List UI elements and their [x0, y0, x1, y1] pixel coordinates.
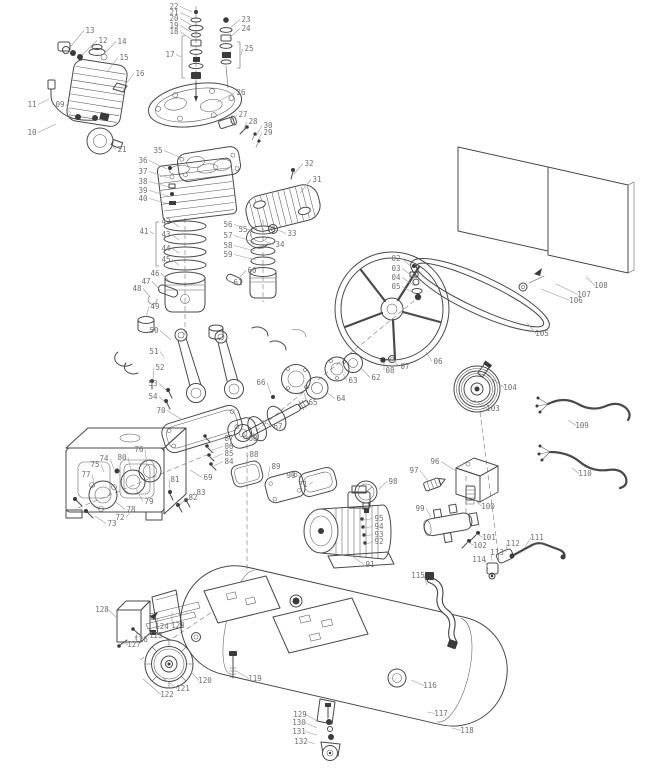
leader-line: [160, 331, 171, 341]
leader-line: [212, 447, 223, 451]
part-number-label: 74: [99, 454, 109, 463]
valve-plate-parts: [168, 166, 176, 205]
part-number-label: 104: [503, 383, 517, 392]
leader-line: [278, 230, 286, 234]
leader-line: [364, 519, 373, 521]
leader-line: [172, 249, 179, 254]
part-number-label: 95: [374, 514, 383, 523]
leader-line: [361, 368, 370, 378]
part-number-label: 06: [433, 357, 443, 366]
part-number-label: 72: [115, 513, 124, 522]
part-number-label: 102: [473, 541, 487, 550]
leader-line: [307, 742, 315, 745]
leader-line: [176, 55, 181, 58]
part-number-label: 33: [287, 229, 296, 238]
part-number-label: 37: [138, 167, 147, 176]
part-number-label: 23: [241, 15, 250, 24]
part-number-label: 15: [119, 53, 128, 62]
part-number-label: 110: [578, 469, 592, 478]
part-number-label: 35: [153, 146, 162, 155]
leader-line: [180, 13, 192, 19]
part-number-label: 88: [249, 450, 259, 459]
leader-line: [101, 465, 104, 473]
part-number-label: 04: [391, 273, 401, 282]
part-number-label: 116: [423, 681, 437, 690]
leader-line: [309, 482, 313, 485]
leader-line: [426, 352, 432, 362]
leader-line: [306, 715, 317, 722]
leader-line: [108, 610, 116, 618]
part-number-label: 98: [388, 477, 398, 486]
part-number-label: 107: [577, 290, 591, 299]
outlet-manifold: [421, 486, 481, 548]
leader-line: [190, 470, 202, 478]
part-number-label: 131: [292, 727, 306, 736]
part-number-label: 25: [244, 44, 253, 53]
mounting-plates: [204, 576, 368, 653]
intake-muffler: [58, 42, 129, 128]
leader-line: [441, 462, 456, 472]
part-number-label: 08: [385, 366, 395, 375]
part-number-label: 24: [241, 24, 251, 33]
leader-line: [210, 439, 223, 443]
part-number-label: 99: [415, 504, 424, 513]
part-number-label: 43: [161, 230, 170, 239]
part-number-label: 53: [148, 379, 157, 388]
part-number-label: 73: [107, 519, 116, 528]
part-number-label: 78: [126, 505, 136, 514]
leader-line: [541, 289, 570, 301]
part-number-label: 70: [156, 406, 166, 415]
leader-line: [159, 397, 165, 403]
part-number-label: 45: [161, 255, 170, 264]
part-number-label: 68: [248, 434, 258, 443]
part-number-label: 42: [161, 217, 170, 226]
part-number-label: 113: [490, 548, 504, 557]
leader-line: [267, 383, 271, 395]
part-number-label: 77: [81, 470, 90, 479]
part-number-label: 80: [117, 453, 127, 462]
leader-line: [426, 509, 431, 518]
part-number-label: 67: [273, 422, 282, 431]
part-number-label: 50: [149, 326, 159, 335]
leader-line: [420, 471, 428, 482]
leader-line: [149, 199, 169, 205]
part-number-label: 51: [149, 347, 158, 356]
leader-line: [326, 392, 335, 399]
part-number-label: 31: [312, 175, 321, 184]
part-number-label: 100: [481, 502, 495, 511]
part-number-label: 75: [90, 460, 99, 469]
leader-line: [172, 235, 179, 241]
part-number-label: 29: [263, 128, 272, 137]
leader-line: [180, 7, 192, 13]
part-number-label: 62: [371, 373, 380, 382]
leader-line: [150, 232, 154, 235]
part-number-label: 14: [117, 37, 127, 46]
part-number-label: 97: [409, 466, 418, 475]
part-number-label: 87: [224, 434, 233, 443]
part-number-label: 130: [292, 718, 306, 727]
part-number-label: 07: [400, 362, 409, 371]
part-number-label: 44: [161, 244, 171, 253]
leader-line: [379, 482, 387, 490]
part-number-label: 02: [391, 254, 400, 263]
leader-line: [172, 222, 179, 228]
leader-line: [38, 124, 56, 133]
part-number-label: 111: [530, 533, 544, 542]
axis-lines: [78, 6, 499, 660]
head-studs: [240, 125, 261, 147]
part-number-label: 38: [138, 177, 148, 186]
belt-guard-grille: [458, 147, 634, 291]
part-number-label: 12: [98, 36, 107, 45]
cylinder-head: [145, 77, 244, 133]
part-number-label: 52: [155, 363, 164, 372]
part-number-label: 90: [286, 471, 296, 480]
part-number-label: 89: [271, 462, 280, 471]
part-number-label: 128: [95, 605, 109, 614]
pressure-switch: [456, 458, 498, 504]
part-number-label: 91: [365, 560, 374, 569]
part-number-label: 22: [169, 2, 178, 11]
part-number-label: 93: [374, 530, 383, 539]
leader-line: [164, 151, 182, 159]
air-tank: [170, 555, 518, 737]
part-number-label: 69: [203, 473, 212, 482]
part-number-label: 118: [460, 726, 474, 735]
leader-line: [146, 307, 149, 318]
part-number-label: 109: [575, 421, 589, 430]
part-number-label: 11: [27, 100, 36, 109]
part-number-label: 60: [247, 266, 257, 275]
leader-line: [305, 723, 317, 729]
part-number-label: 114: [472, 555, 486, 564]
part-number-label: 127: [127, 640, 141, 649]
part-number-label: 13: [85, 26, 94, 35]
crankshaft: [226, 390, 314, 450]
leader-line: [145, 450, 147, 466]
part-number-label: 58: [223, 241, 233, 250]
fin-cover: [243, 168, 324, 234]
part-number-label: 27: [238, 110, 247, 119]
leader-line: [110, 459, 114, 470]
part-number-label: 123: [171, 621, 185, 630]
part-number-label: 49: [150, 302, 159, 311]
part-number-label: 17: [165, 50, 174, 59]
part-number-label: 124: [155, 622, 169, 631]
part-number-label: 132: [294, 737, 308, 746]
leader-line: [124, 74, 134, 87]
part-number-label: 121: [176, 684, 190, 693]
part-number-label: 120: [198, 676, 212, 685]
leader-line: [116, 502, 125, 510]
part-number-label: 46: [150, 269, 160, 278]
v-belt: [403, 246, 557, 345]
leader-line: [149, 172, 169, 179]
part-number-label: 66: [256, 378, 266, 387]
part-number-label: 76: [134, 445, 144, 454]
part-number-label: 63: [348, 376, 357, 385]
unloader-fitting: [423, 475, 447, 491]
connecting-rods: [115, 327, 306, 409]
part-number-label: 61: [233, 278, 242, 287]
leader-line: [213, 454, 223, 459]
leader-line: [152, 282, 160, 291]
flexible-discharge-hose: [425, 572, 458, 649]
leader-line: [229, 20, 240, 30]
part-number-label: 41: [139, 227, 148, 236]
leader-line: [234, 255, 256, 261]
leader-line: [294, 164, 303, 175]
part-number-label: 79: [144, 497, 153, 506]
bearing-seals: [73, 460, 161, 518]
leader-line: [297, 476, 300, 478]
part-number-label: 71: [298, 480, 307, 489]
part-number-label: 34: [275, 240, 285, 249]
tank-bolt: [229, 651, 237, 678]
part-number-label: 16: [135, 69, 145, 78]
part-number-label: 86: [224, 442, 234, 451]
part-number-label: 122: [160, 690, 174, 699]
part-number-label: 47: [141, 277, 150, 286]
leader-line: [229, 29, 240, 39]
leader-line: [411, 680, 424, 686]
piston-ring-sets: [156, 221, 275, 270]
part-number-label: 94: [374, 522, 384, 531]
part-number-label: 103: [486, 404, 500, 413]
diagram-canvas: 0203040506070809101112131415161718192021…: [0, 0, 646, 768]
leader-line: [227, 280, 232, 283]
part-number-label: 108: [594, 281, 608, 290]
leader-line: [143, 289, 150, 298]
part-number-label: 125: [149, 631, 163, 640]
part-number-label: 54: [148, 392, 158, 401]
part-number-label: 32: [304, 159, 313, 168]
part-number-label: 84: [224, 457, 234, 466]
part-number-label: 26: [236, 88, 246, 97]
leader-line: [214, 462, 223, 467]
leader-line: [38, 99, 49, 105]
leader-line: [159, 384, 167, 392]
part-number-label: 81: [170, 475, 179, 484]
part-number-label: 64: [336, 394, 346, 403]
part-number-label: 59: [223, 250, 232, 259]
part-number-label: 21: [117, 145, 126, 154]
part-number-label: 48: [132, 284, 142, 293]
part-number-label: 40: [138, 194, 148, 203]
leader-line: [71, 31, 84, 47]
part-number-label: 117: [434, 709, 448, 718]
leader-line: [305, 732, 317, 736]
part-number-label: 96: [430, 457, 440, 466]
leader-line: [268, 467, 270, 478]
leader-line: [95, 516, 106, 524]
leader-line: [149, 191, 169, 197]
part-number-label: 28: [248, 117, 258, 126]
leader-line: [240, 271, 246, 278]
part-number-label: 83: [196, 488, 205, 497]
exploded-diagram: 0203040506070809101112131415161718192021…: [0, 0, 646, 768]
leader-line: [556, 284, 578, 295]
leader-line: [180, 19, 191, 26]
part-number-label: 36: [138, 156, 148, 165]
part-number-label: 10: [27, 128, 37, 137]
leader-line: [241, 49, 243, 56]
part-number-label: 05: [391, 282, 400, 291]
leader-line: [160, 352, 164, 358]
part-number-label: 09: [55, 100, 64, 109]
part-number-label: 112: [506, 539, 520, 548]
leader-line: [180, 32, 191, 40]
part-number-label: 57: [223, 231, 232, 240]
leader-line: [136, 489, 143, 502]
part-number-label: 56: [223, 220, 233, 229]
part-number-label: 105: [535, 329, 549, 338]
part-number-label: 119: [248, 674, 262, 683]
part-number-label: 65: [308, 398, 317, 407]
part-number-label: 115: [411, 571, 425, 580]
leader-line: [167, 411, 183, 421]
part-number-label: 03: [391, 264, 400, 273]
